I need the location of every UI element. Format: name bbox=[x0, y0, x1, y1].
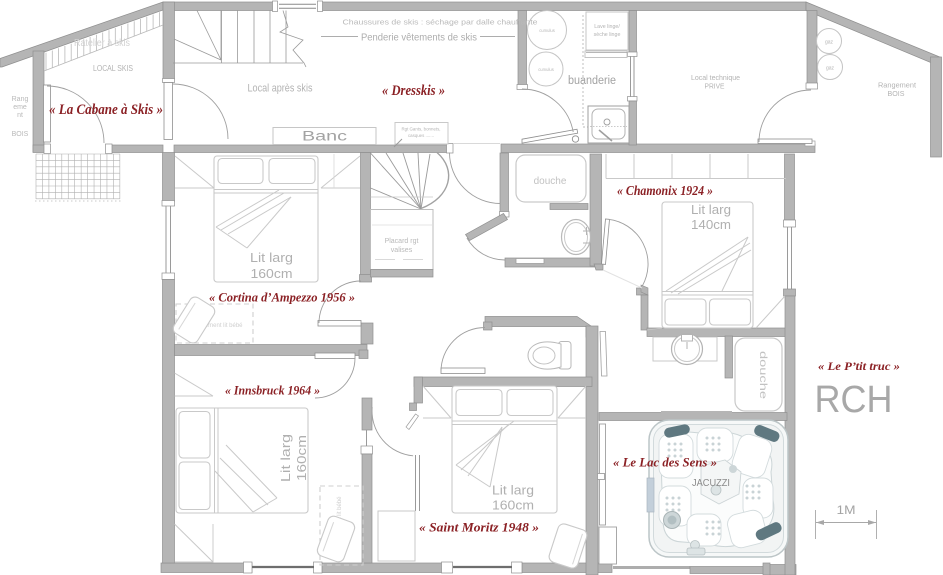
svg-text:RCH: RCH bbox=[815, 379, 893, 421]
svg-text:gaz: gaz bbox=[826, 66, 835, 72]
svg-text:« Cortina d’Ampezzo 1956 »: « Cortina d’Ampezzo 1956 » bbox=[209, 290, 355, 305]
svg-text:BOIS: BOIS bbox=[888, 89, 905, 98]
svg-text:BOIS: BOIS bbox=[12, 131, 29, 138]
svg-text:Lave linge/: Lave linge/ bbox=[594, 24, 620, 30]
svg-text:« Saint Moritz 1948 »: « Saint Moritz 1948 » bbox=[419, 520, 539, 535]
svg-text:buanderie: buanderie bbox=[568, 75, 616, 87]
svg-text:160cm: 160cm bbox=[295, 435, 309, 481]
svg-text:160cm: 160cm bbox=[492, 499, 534, 513]
svg-text:Placard rgt: Placard rgt bbox=[385, 238, 419, 245]
svg-text:JACUZZI: JACUZZI bbox=[692, 478, 730, 489]
svg-text:160cm: 160cm bbox=[251, 266, 293, 281]
svg-text:eme: eme bbox=[13, 104, 27, 111]
svg-text:PRIVE: PRIVE bbox=[705, 82, 725, 91]
svg-text:Rgt Gants, bonnets,: Rgt Gants, bonnets, bbox=[401, 127, 440, 132]
svg-text:nt: nt bbox=[17, 112, 23, 119]
svg-text:Ratelier à skis: Ratelier à skis bbox=[74, 38, 130, 49]
svg-text:cumulus: cumulus bbox=[539, 28, 555, 33]
svg-text:Lit larg: Lit larg bbox=[492, 484, 534, 498]
svg-text:Lit larg: Lit larg bbox=[279, 434, 293, 482]
svg-text:sèche linge: sèche linge bbox=[594, 32, 621, 38]
svg-text:douche: douche bbox=[534, 176, 567, 187]
svg-text:LOCAL SKIS: LOCAL SKIS bbox=[93, 63, 133, 73]
svg-text:« Le Lac des Sens »: « Le Lac des Sens » bbox=[613, 455, 717, 470]
svg-text:Rang: Rang bbox=[12, 96, 29, 103]
svg-text:Banc: Banc bbox=[302, 129, 347, 144]
svg-text:Lit larg: Lit larg bbox=[691, 203, 731, 217]
svg-text:cumulus: cumulus bbox=[538, 67, 554, 72]
svg-text:gaz: gaz bbox=[825, 40, 834, 46]
svg-text:« Chamonix 1924 »: « Chamonix 1924 » bbox=[617, 183, 713, 198]
svg-text:Penderie vêtements de skis: Penderie vêtements de skis bbox=[361, 32, 477, 44]
svg-text:Local après skis: Local après skis bbox=[248, 83, 313, 95]
svg-text:« Le P’tit truc »: « Le P’tit truc » bbox=[818, 361, 900, 373]
svg-text:Chaussures de skis : séchage p: Chaussures de skis : séchage par dalle c… bbox=[343, 18, 538, 27]
svg-text:douche: douche bbox=[757, 351, 768, 400]
svg-text:valises: valises bbox=[391, 247, 413, 254]
svg-text:casques .......: casques ....... bbox=[408, 133, 434, 138]
svg-text:1M: 1M bbox=[837, 503, 856, 517]
svg-text:Lit larg: Lit larg bbox=[250, 250, 293, 265]
svg-text:« La Cabane à Skis »: « La Cabane à Skis » bbox=[49, 102, 163, 118]
svg-text:« Innsbruck 1964 »: « Innsbruck 1964 » bbox=[225, 383, 320, 398]
svg-text:140cm: 140cm bbox=[691, 218, 731, 232]
svg-text:« Dresskis »: « Dresskis » bbox=[382, 83, 445, 99]
